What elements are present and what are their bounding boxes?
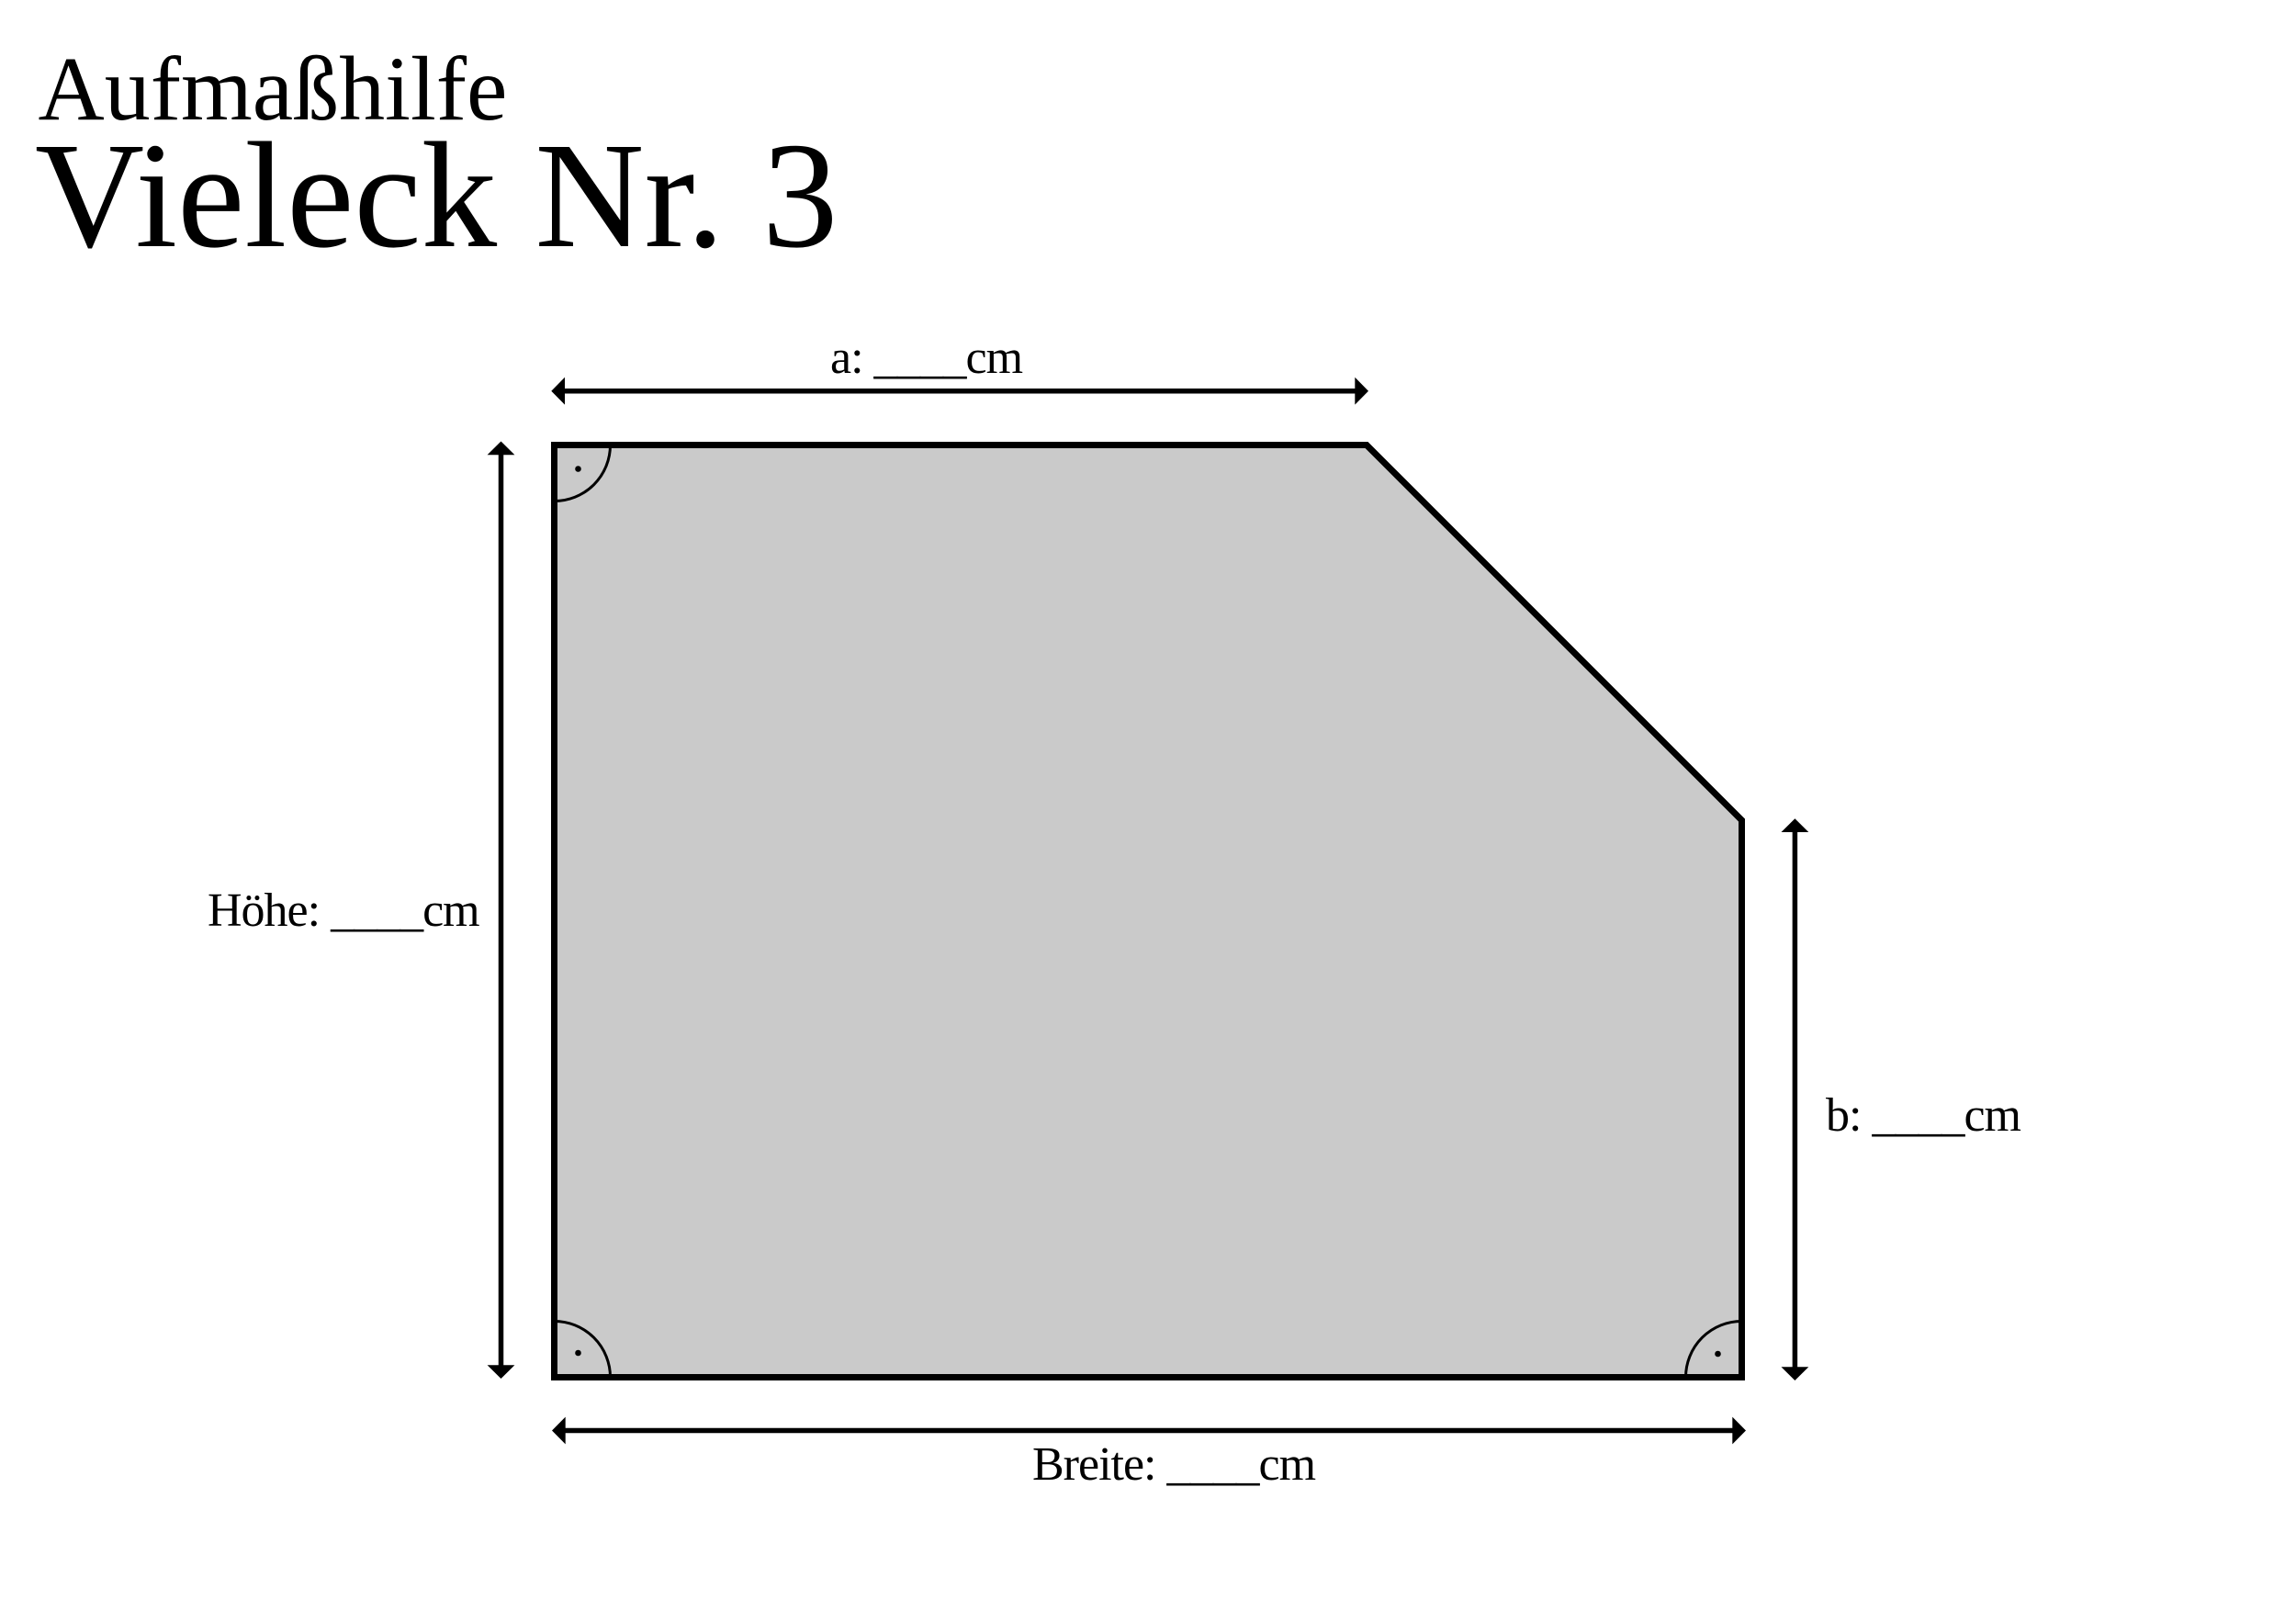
svg-text:Breite: ____cm: Breite: ____cm bbox=[1032, 1438, 1316, 1491]
svg-text:b: ____cm: b: ____cm bbox=[1826, 1089, 2021, 1142]
svg-text:Vieleck Nr. 3: Vieleck Nr. 3 bbox=[35, 111, 838, 279]
svg-text:Höhe: ____cm: Höhe: ____cm bbox=[208, 885, 479, 937]
svg-text:a: ____cm: a: ____cm bbox=[830, 332, 1023, 384]
